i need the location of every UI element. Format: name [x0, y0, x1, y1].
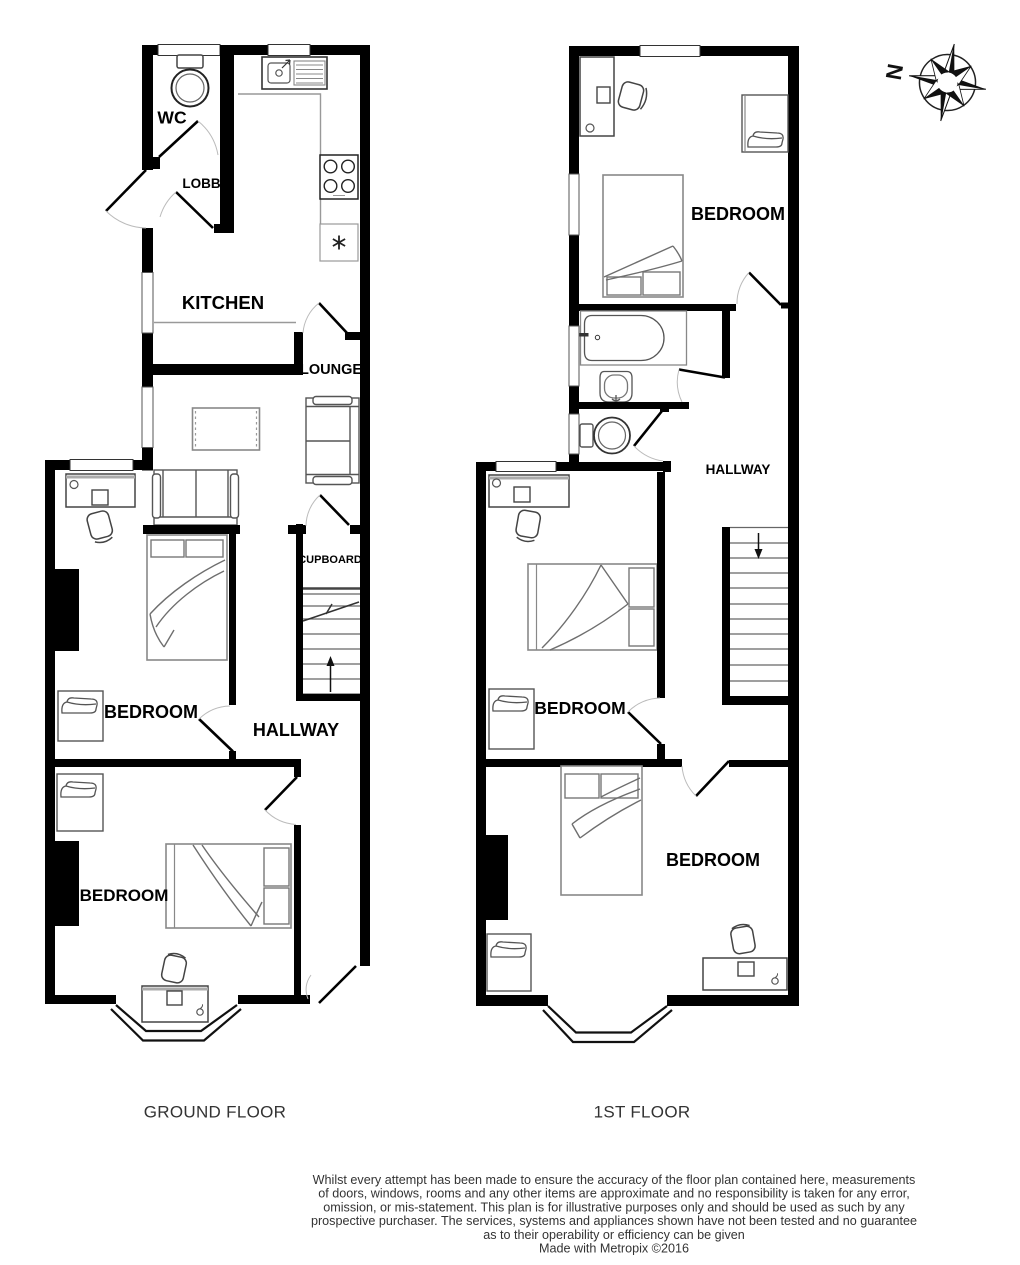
svg-text:BEDROOM: BEDROOM [104, 702, 198, 722]
svg-text:prospective purchaser. The ser: prospective purchaser. The services, sys… [311, 1214, 917, 1228]
svg-text:omission, or mis-statement. Th: omission, or mis-statement. This plan is… [323, 1200, 905, 1214]
svg-text:as to their operability or eff: as to their operability or efficiency ca… [483, 1228, 745, 1242]
svg-text:GROUND FLOOR: GROUND FLOOR [144, 1103, 286, 1122]
svg-text:HALLWAY: HALLWAY [253, 720, 339, 740]
svg-text:HALLWAY: HALLWAY [706, 462, 771, 477]
svg-text:BEDROOM: BEDROOM [666, 850, 760, 870]
svg-text:BEDROOM: BEDROOM [80, 886, 169, 905]
svg-text:CUPBOARD: CUPBOARD [298, 554, 362, 566]
svg-text:BEDROOM: BEDROOM [691, 204, 785, 224]
svg-text:1ST FLOOR: 1ST FLOOR [594, 1103, 691, 1122]
svg-text:WC: WC [157, 108, 187, 128]
svg-text:Made with Metropix ©2016: Made with Metropix ©2016 [539, 1242, 689, 1256]
svg-text:KITCHEN: KITCHEN [182, 292, 264, 313]
svg-text:Whilst every attempt has been: Whilst every attempt has been made to en… [313, 1173, 916, 1187]
svg-text:of doors, windows, rooms and a: of doors, windows, rooms and any other i… [318, 1187, 910, 1201]
svg-text:LOUNGE: LOUNGE [300, 362, 362, 378]
svg-text:LOBBY: LOBBY [182, 176, 229, 191]
svg-text:BEDROOM: BEDROOM [534, 698, 625, 718]
